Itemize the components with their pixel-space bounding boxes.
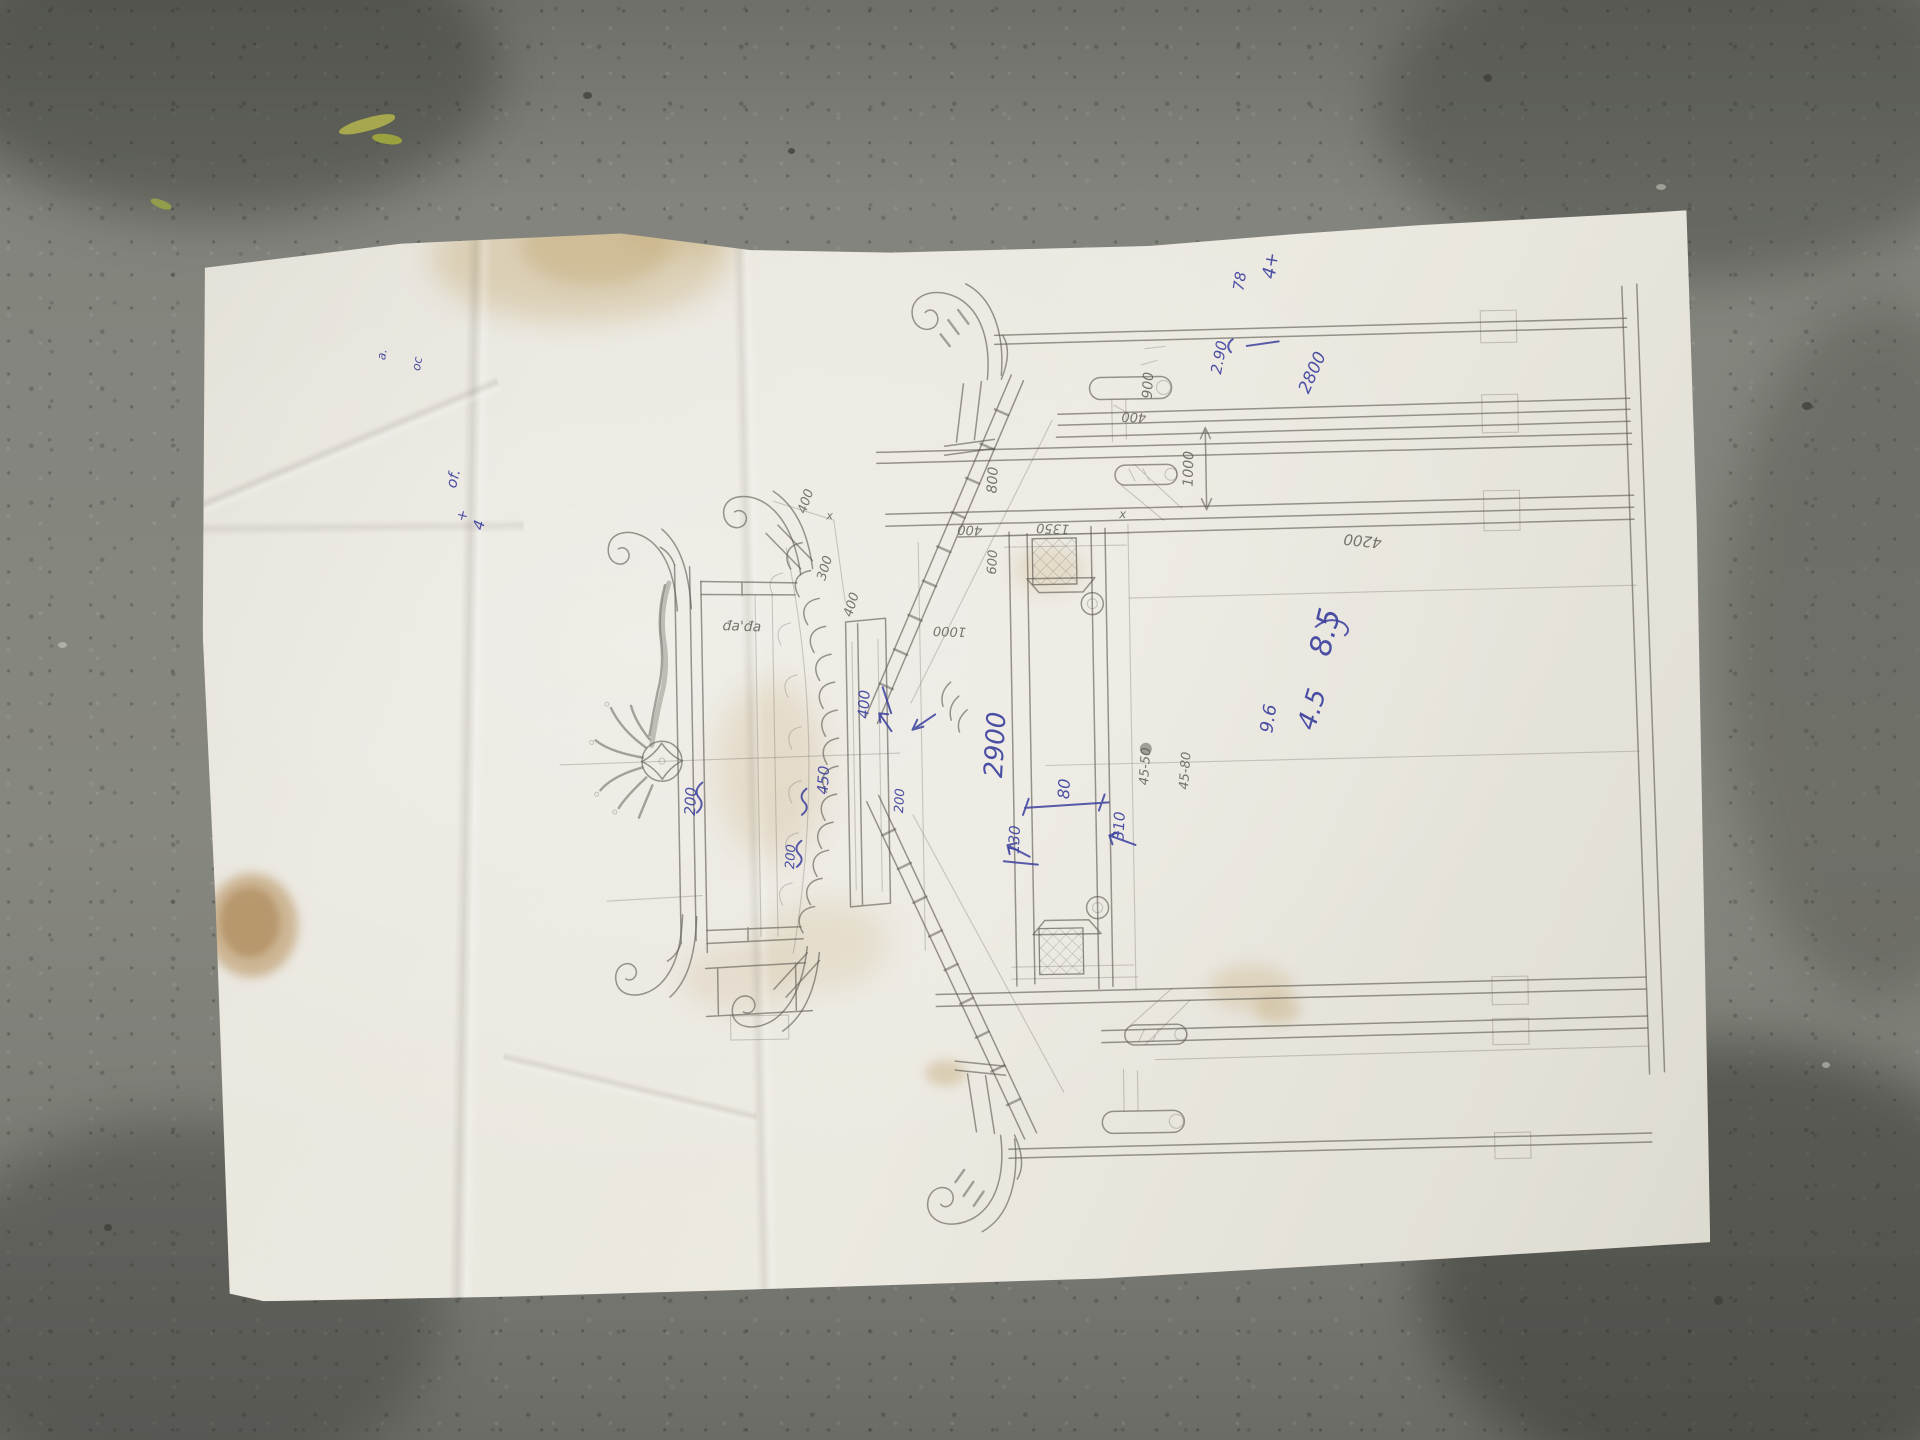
- stain: [219, 887, 280, 958]
- floor-speckle: [58, 642, 67, 648]
- stain: [1255, 994, 1301, 1024]
- pebble-hole: [1802, 402, 1812, 410]
- pebble-hole: [1714, 1296, 1723, 1305]
- pebble-hole: [1484, 74, 1492, 82]
- stain: [925, 1060, 965, 1086]
- floor-speckle: [1656, 184, 1666, 190]
- paper-crease: [163, 376, 502, 531]
- stain: [680, 942, 801, 1013]
- pebble-hole: [583, 92, 592, 99]
- pebble-hole: [788, 148, 795, 154]
- paper-crease: [501, 1051, 758, 1127]
- stain: [1014, 547, 1084, 594]
- pebble-hole: [104, 1224, 112, 1231]
- paper-crease: [448, 203, 493, 1303]
- stain: [715, 679, 827, 860]
- paper-sheet: [190, 190, 1713, 1306]
- photo-scene: 4+ 78 2.90 2800 8.5 4.5 9.6 2900 80 130 …: [0, 0, 1920, 1440]
- floor-speckle: [1822, 1062, 1830, 1068]
